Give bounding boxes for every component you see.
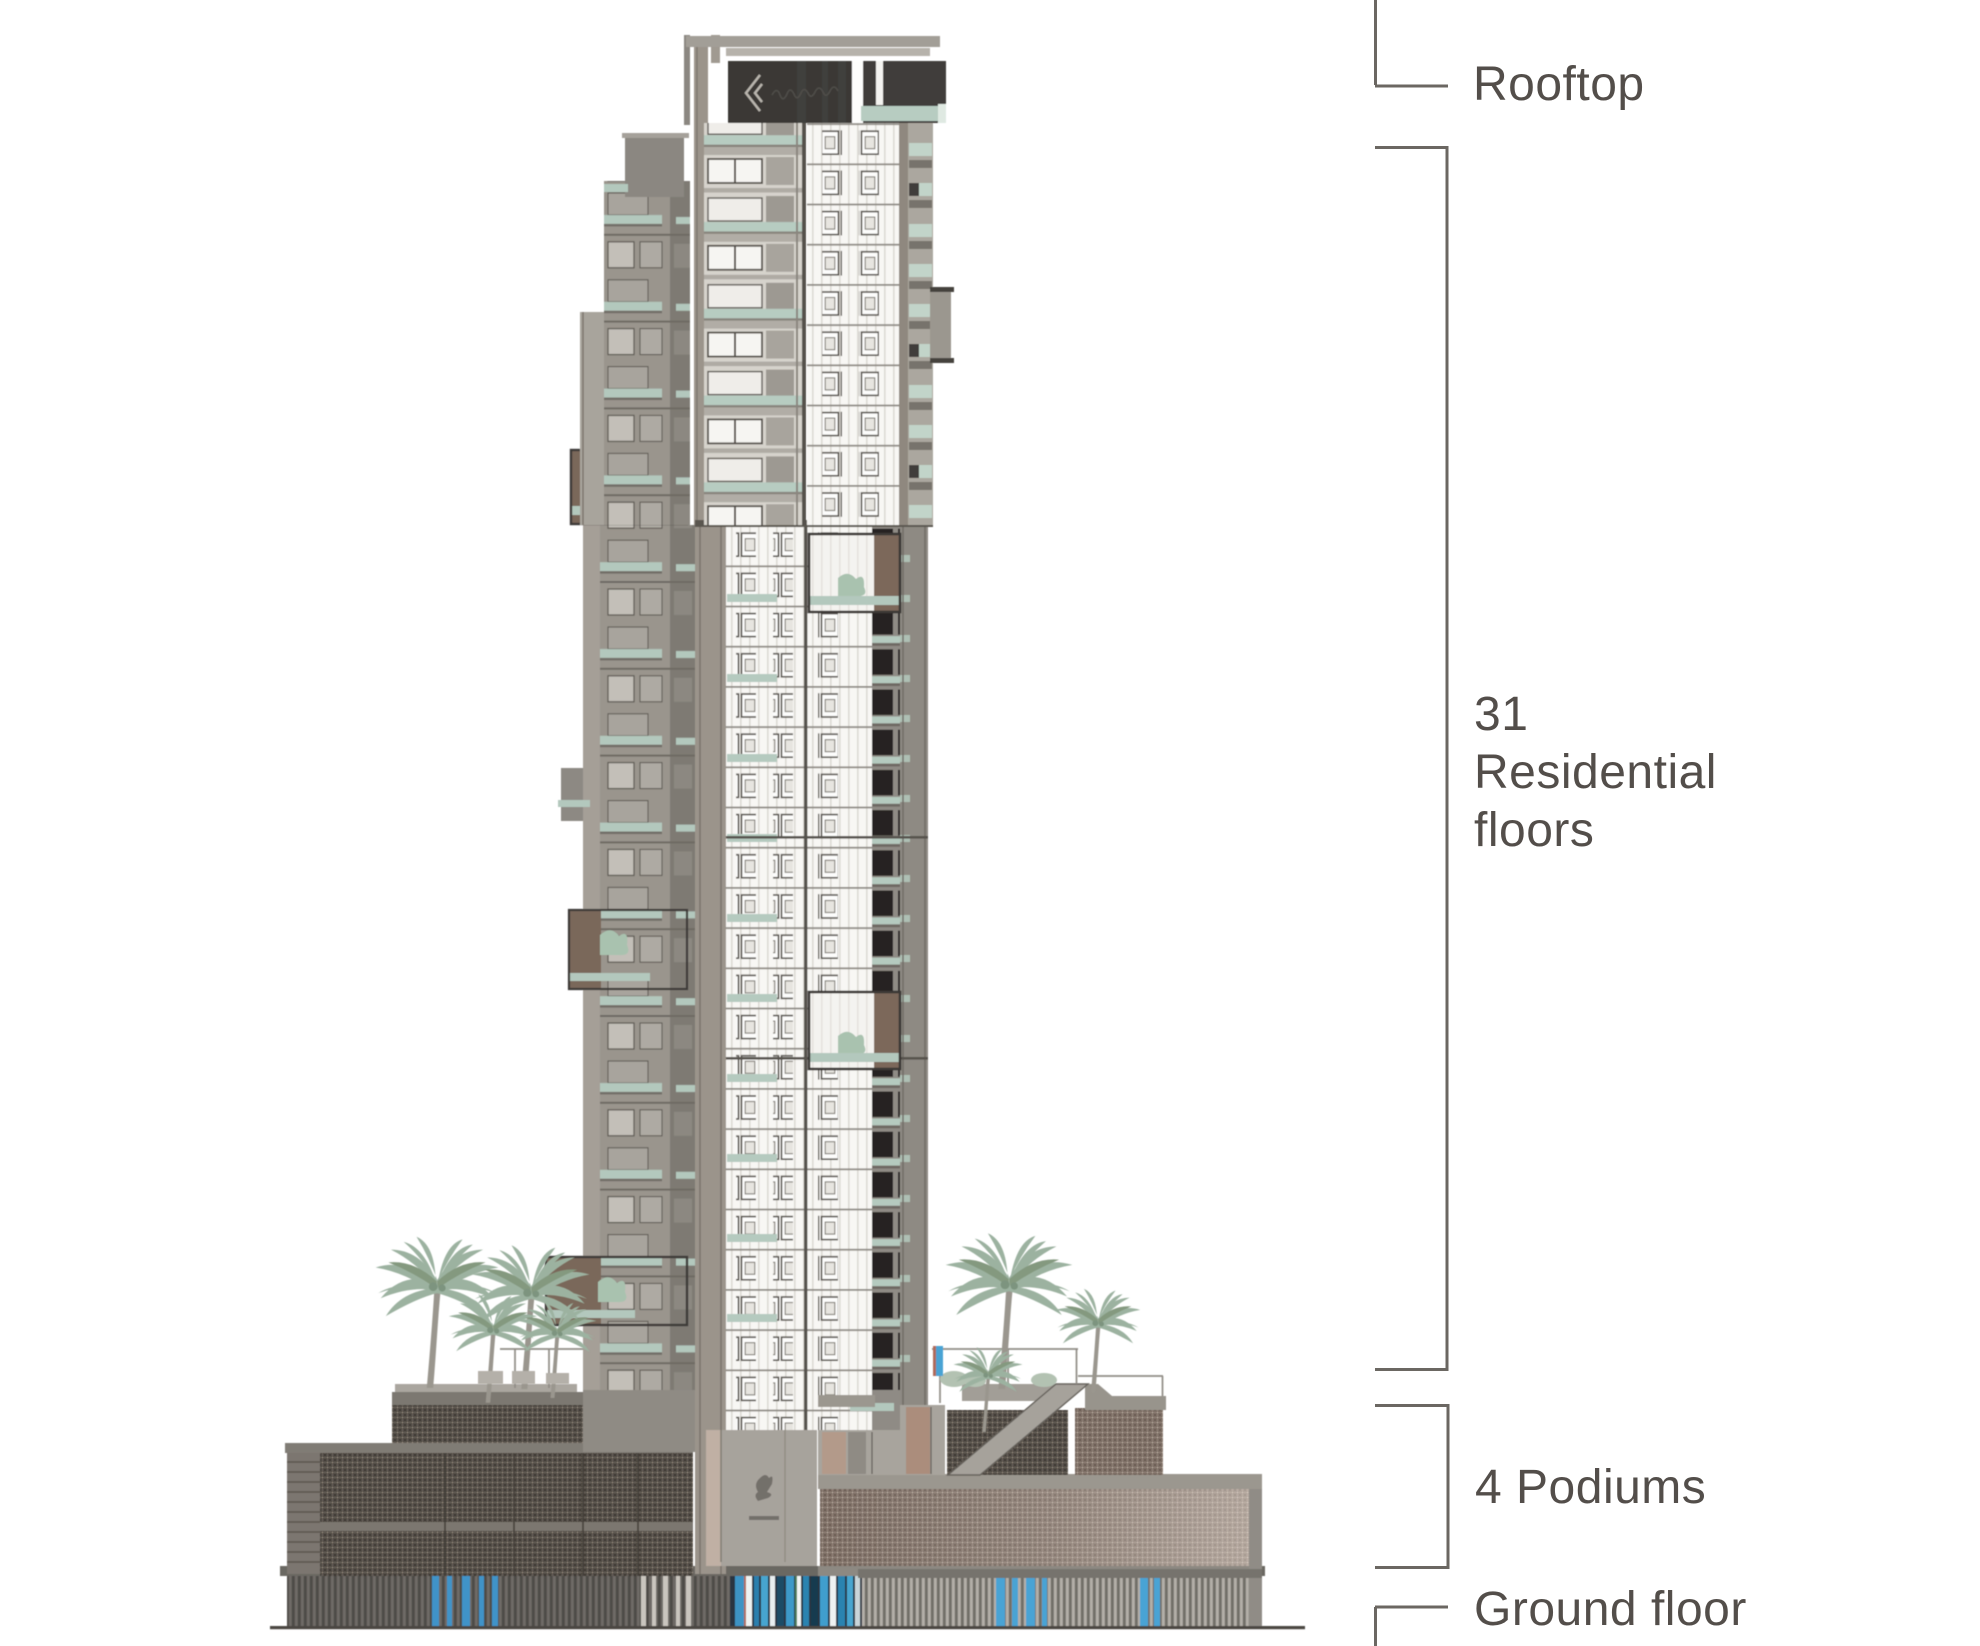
svg-text:31: 31	[1474, 688, 1528, 741]
svg-text:4 Podiums: 4 Podiums	[1475, 1461, 1706, 1514]
svg-text:Ground floor: Ground floor	[1474, 1583, 1747, 1636]
svg-text:Rooftop: Rooftop	[1473, 58, 1645, 111]
svg-text:Residential: Residential	[1474, 746, 1717, 799]
svg-text:floors: floors	[1474, 804, 1594, 857]
